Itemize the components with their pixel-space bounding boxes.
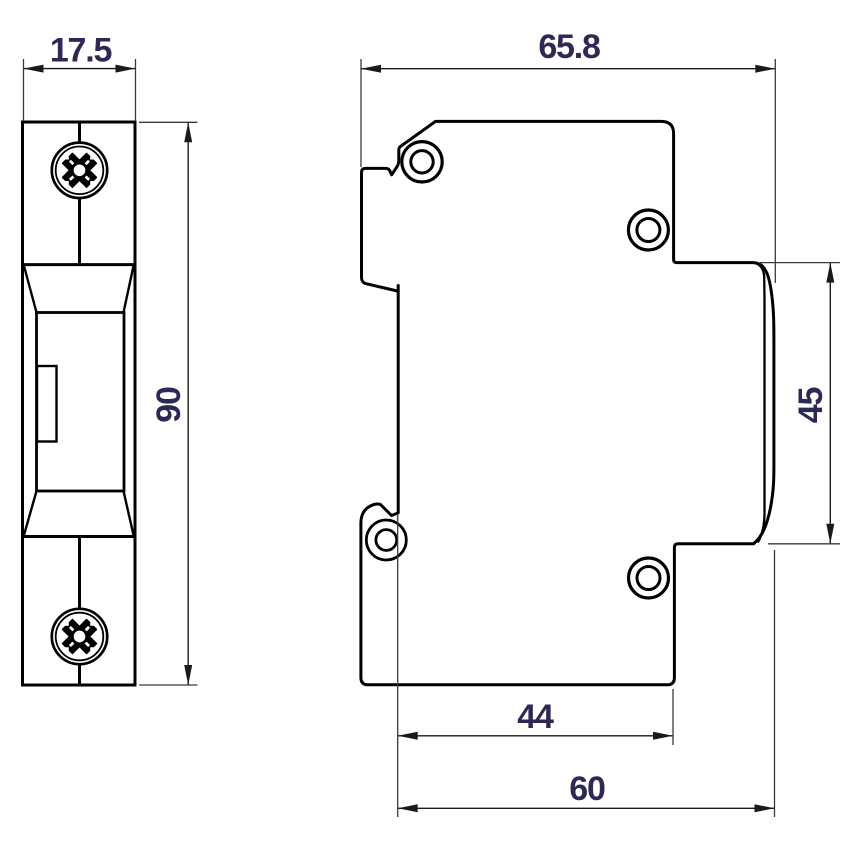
svg-text:60: 60 (569, 770, 605, 808)
svg-text:44: 44 (517, 698, 554, 736)
svg-text:17.5: 17.5 (50, 32, 112, 70)
svg-text:90: 90 (150, 387, 188, 423)
svg-text:65.8: 65.8 (538, 28, 600, 66)
svg-text:45: 45 (792, 388, 830, 424)
